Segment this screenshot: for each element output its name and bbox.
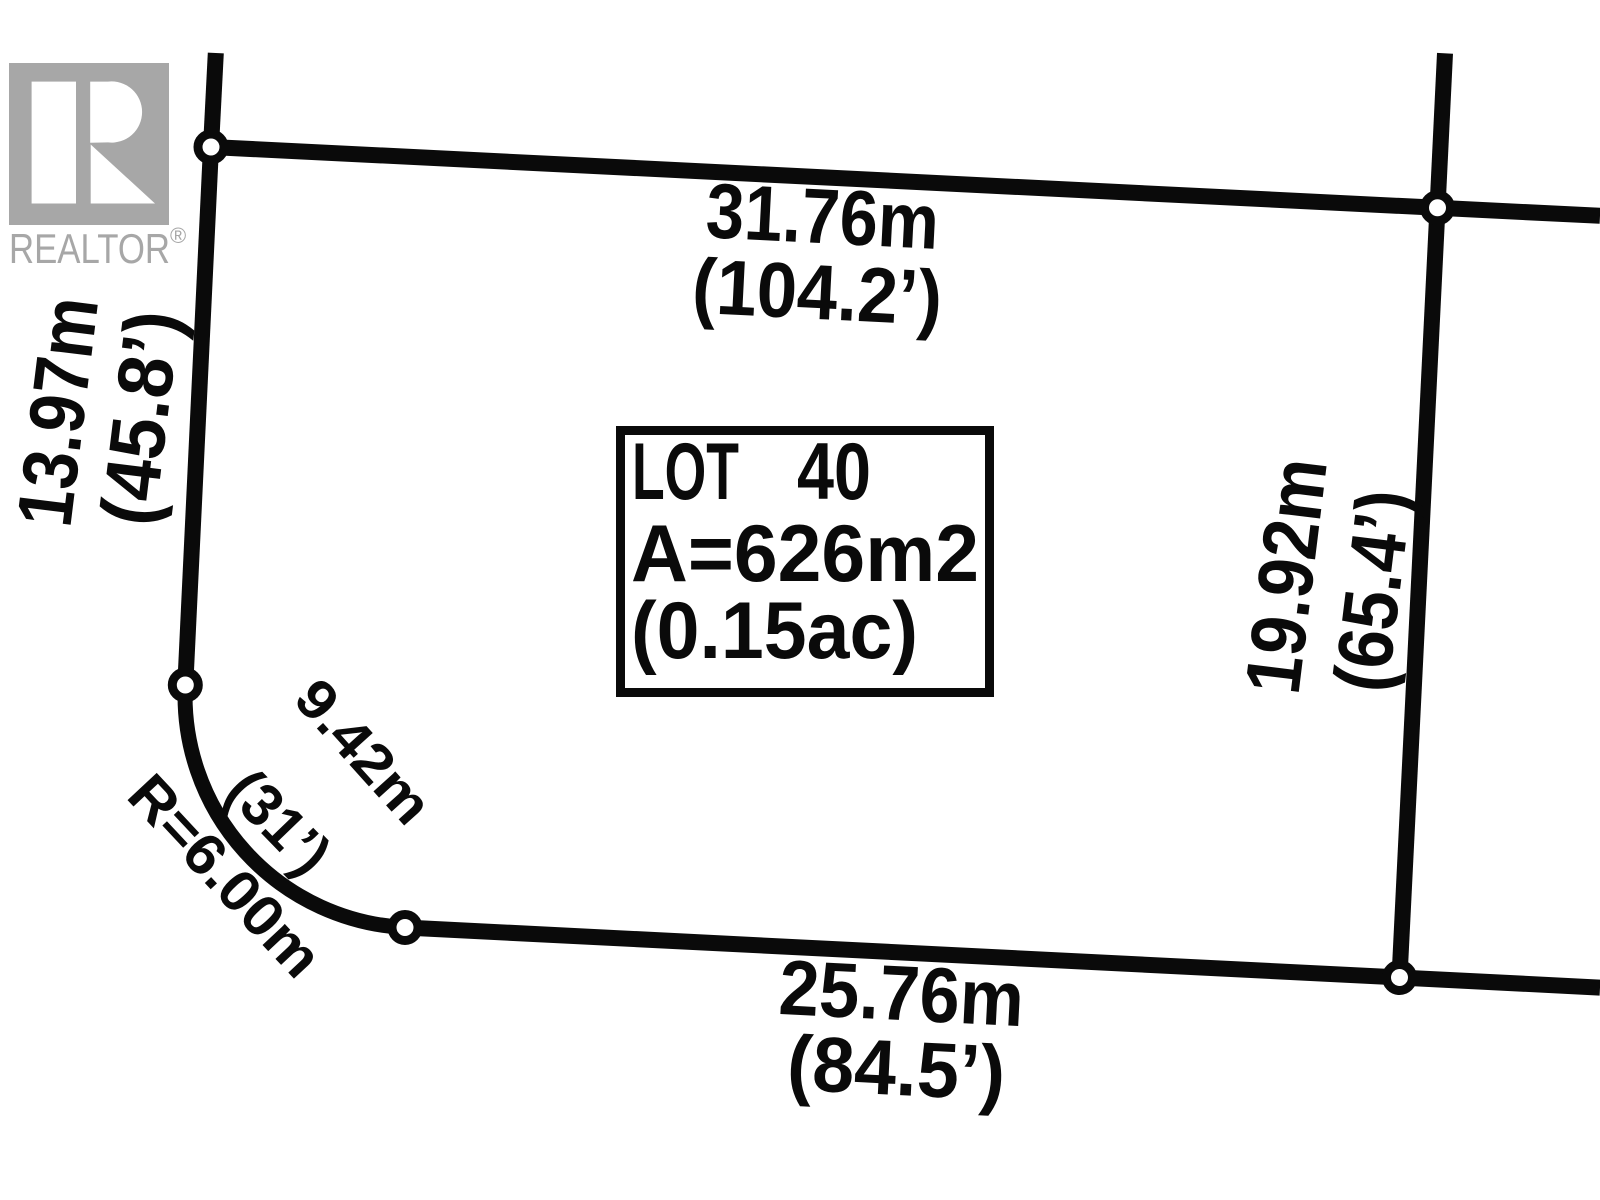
svg-text:40: 40 — [797, 427, 871, 517]
svg-text:(104.2’): (104.2’) — [690, 242, 944, 343]
svg-text:(0.15ac): (0.15ac) — [631, 586, 918, 676]
svg-text:®: ® — [170, 223, 186, 248]
svg-text:LOT: LOT — [632, 427, 739, 517]
svg-text:(84.5’): (84.5’) — [785, 1018, 1007, 1117]
svg-text:REALTOR: REALTOR — [9, 225, 170, 272]
